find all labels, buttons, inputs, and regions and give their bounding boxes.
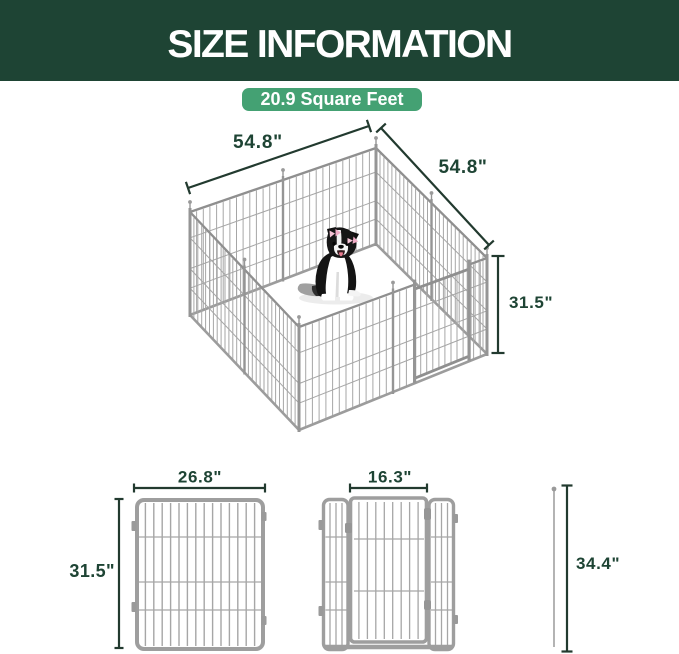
svg-text:31.5": 31.5" — [509, 293, 553, 312]
svg-text:16.3": 16.3" — [368, 468, 412, 487]
svg-text:54.8": 54.8" — [439, 157, 488, 178]
svg-text:26.8": 26.8" — [178, 468, 222, 487]
svg-text:31.5": 31.5" — [69, 561, 115, 581]
svg-text:54.8": 54.8" — [233, 132, 283, 153]
svg-text:34.4": 34.4" — [576, 554, 620, 573]
